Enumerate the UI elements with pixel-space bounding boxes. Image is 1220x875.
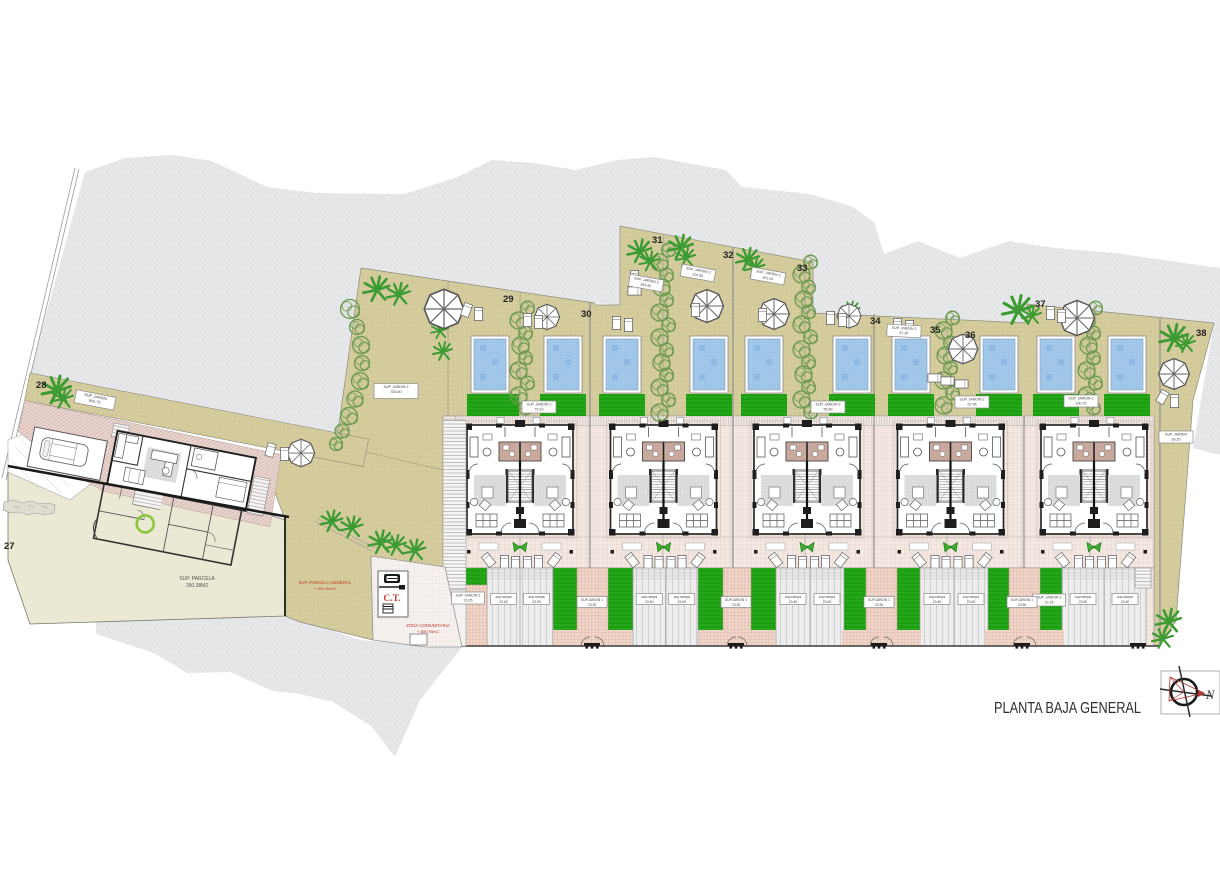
svg-text:+-481.54m2: +-481.54m2 — [314, 586, 336, 591]
svg-text:23.35: 23.35 — [1045, 600, 1054, 604]
svg-text:23.60: 23.60 — [678, 600, 687, 604]
svg-text:31: 31 — [652, 235, 663, 246]
svg-text:SUP.JARDIN 1: SUP.JARDIN 1 — [725, 598, 747, 602]
svg-text:SUP. PARCELA: SUP. PARCELA — [179, 576, 215, 582]
svg-text:SUP. JARDIN 2: SUP. JARDIN 2 — [1069, 396, 1094, 400]
svg-text:SUP.JARDIN 1: SUP.JARDIN 1 — [868, 598, 890, 602]
svg-text:SUP.JARDIN 1: SUP.JARDIN 1 — [581, 598, 603, 602]
svg-text:23.60: 23.60 — [1079, 600, 1088, 604]
svg-text:87.35: 87.35 — [899, 331, 908, 335]
svg-text:SUP. JARDIN 2: SUP. JARDIN 2 — [816, 402, 841, 406]
svg-text:SUP. JARDIN 1: SUP. JARDIN 1 — [456, 593, 481, 597]
svg-text:67.95: 67.95 — [968, 402, 977, 406]
svg-text:sup.rampa: sup.rampa — [674, 595, 690, 599]
svg-text:23.60: 23.60 — [823, 600, 832, 604]
svg-text:23.35: 23.35 — [1018, 603, 1026, 607]
svg-text:SUP. JARDIN 2: SUP. JARDIN 2 — [527, 402, 552, 406]
svg-text:sup.rampa: sup.rampa — [641, 595, 657, 599]
svg-text:23.60: 23.60 — [789, 600, 798, 604]
svg-text:SUP. JARDIN 2: SUP. JARDIN 2 — [384, 385, 409, 389]
svg-text:30: 30 — [581, 309, 592, 320]
svg-text:28: 28 — [36, 380, 47, 391]
svg-text:C.T.: C.T. — [383, 594, 400, 604]
svg-text:27: 27 — [4, 541, 15, 552]
svg-text:23.35: 23.35 — [875, 603, 883, 607]
svg-text:23.60: 23.60 — [499, 600, 508, 604]
svg-text:sup.rampa: sup.rampa — [929, 595, 945, 599]
svg-text:SUP.JARDIN 1: SUP.JARDIN 1 — [1011, 598, 1033, 602]
svg-text:23.35: 23.35 — [588, 603, 596, 607]
svg-text:SUP. JARDIN: SUP. JARDIN — [1165, 432, 1187, 436]
svg-text:sup.rampa: sup.rampa — [1117, 595, 1133, 599]
svg-text:100.75: 100.75 — [1076, 401, 1087, 405]
svg-text:+-680.95m2: +-680.95m2 — [417, 629, 439, 634]
svg-text:33: 33 — [797, 263, 808, 274]
svg-text:sup.rampa: sup.rampa — [528, 595, 544, 599]
svg-text:23.60: 23.60 — [1121, 600, 1130, 604]
svg-text:23.60: 23.60 — [532, 600, 541, 604]
svg-text:SUP. PARCELA GENERAL: SUP. PARCELA GENERAL — [298, 580, 352, 585]
svg-text:23.60: 23.60 — [933, 600, 942, 604]
svg-text:353.60: 353.60 — [391, 390, 402, 394]
svg-text:sup.rampa: sup.rampa — [963, 595, 979, 599]
svg-text:79.10: 79.10 — [535, 407, 544, 411]
svg-text:sup.rampa: sup.rampa — [1075, 595, 1091, 599]
svg-text:PLANTA BAJA GENERAL: PLANTA BAJA GENERAL — [994, 700, 1141, 717]
svg-text:38: 38 — [1196, 328, 1207, 339]
svg-text:260.38M2: 260.38M2 — [186, 583, 208, 589]
svg-text:36: 36 — [965, 330, 976, 341]
svg-text:sup.rampa: sup.rampa — [819, 595, 835, 599]
svg-text:21.05: 21.05 — [464, 598, 473, 602]
svg-text:23.35: 23.35 — [732, 603, 740, 607]
svg-text:sup.rampa: sup.rampa — [785, 595, 801, 599]
svg-text:SUP. JARDIN 2: SUP. JARDIN 2 — [960, 397, 985, 401]
svg-text:SUP. JARDIN 1: SUP. JARDIN 1 — [1037, 595, 1062, 599]
svg-text:N: N — [1205, 688, 1215, 702]
svg-text:sup.rampa: sup.rampa — [495, 595, 511, 599]
svg-text:34: 34 — [870, 316, 881, 327]
svg-text:23.60: 23.60 — [645, 600, 654, 604]
svg-text:55.80: 55.80 — [824, 407, 833, 411]
svg-text:32: 32 — [723, 250, 734, 261]
svg-text:29: 29 — [503, 294, 514, 305]
svg-text:69.25: 69.25 — [1172, 437, 1181, 441]
svg-text:23.60: 23.60 — [967, 600, 976, 604]
svg-text:ZONA COMUNITARIA: ZONA COMUNITARIA — [406, 623, 450, 628]
svg-text:37: 37 — [1035, 299, 1046, 310]
svg-text:35: 35 — [930, 325, 941, 336]
